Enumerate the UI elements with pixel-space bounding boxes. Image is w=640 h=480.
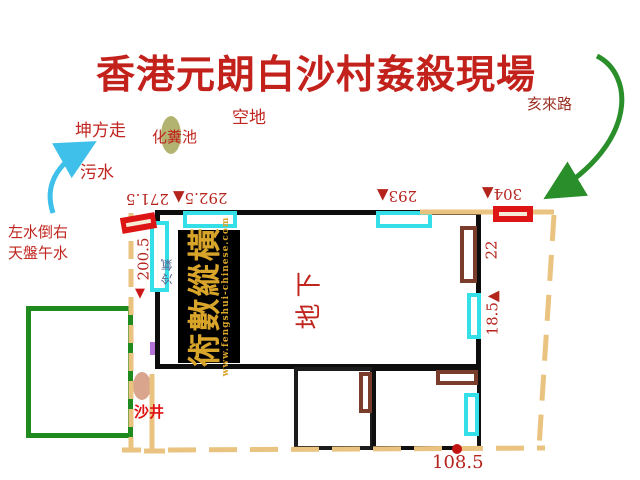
label-ground-floor: 地下: [289, 265, 326, 329]
measure-top-2: 292.5▲: [173, 189, 227, 207]
label-septic-tank: 化糞池: [152, 126, 197, 147]
measure-right-upper: 22: [483, 240, 501, 259]
measure-left: 200.5: [134, 238, 152, 281]
label-sewage: 污水: [80, 158, 114, 183]
measure-right-lower: 18.5▲: [483, 290, 501, 335]
measure-left-wrap: 200.5: [122, 250, 164, 268]
gate-slit: [499, 212, 527, 216]
label-manhole: 沙井: [134, 401, 164, 422]
site-plan-diagram: 術數縱橫 www.fengshui-chinese.com: [0, 0, 640, 480]
measure-top-3: 293▲: [377, 187, 417, 205]
door-slit: [126, 219, 151, 227]
measure-right-lower-wrap: 18.5▲: [459, 304, 525, 321]
page-title: 香港元朗白沙村姦殺現場: [96, 44, 536, 100]
measure-top-1: 271.5: [126, 190, 169, 208]
purple-marker: [150, 342, 155, 355]
measure-left-arrow: ▼: [135, 287, 145, 300]
measure-top-4: 304▲: [482, 185, 522, 203]
gate-top-right: [493, 206, 533, 222]
label-empty-land: 空地: [232, 103, 266, 128]
measure-right-upper-wrap: 22: [477, 242, 507, 258]
label-road: 亥來路: [527, 93, 572, 114]
label-kun-direction: 坤方走: [75, 116, 126, 141]
measure-bottom: 108.5: [432, 452, 484, 473]
boundary-right-dashed-line: [539, 215, 554, 447]
label-ground-floor-wrap: 地下: [282, 266, 332, 328]
label-water-note-2: 天盤午水: [8, 242, 68, 263]
boundary-bottom-dashed-line: [168, 448, 545, 450]
road-approach-arrow: [552, 56, 622, 194]
label-water-note-1: 左水倒右: [8, 221, 68, 242]
